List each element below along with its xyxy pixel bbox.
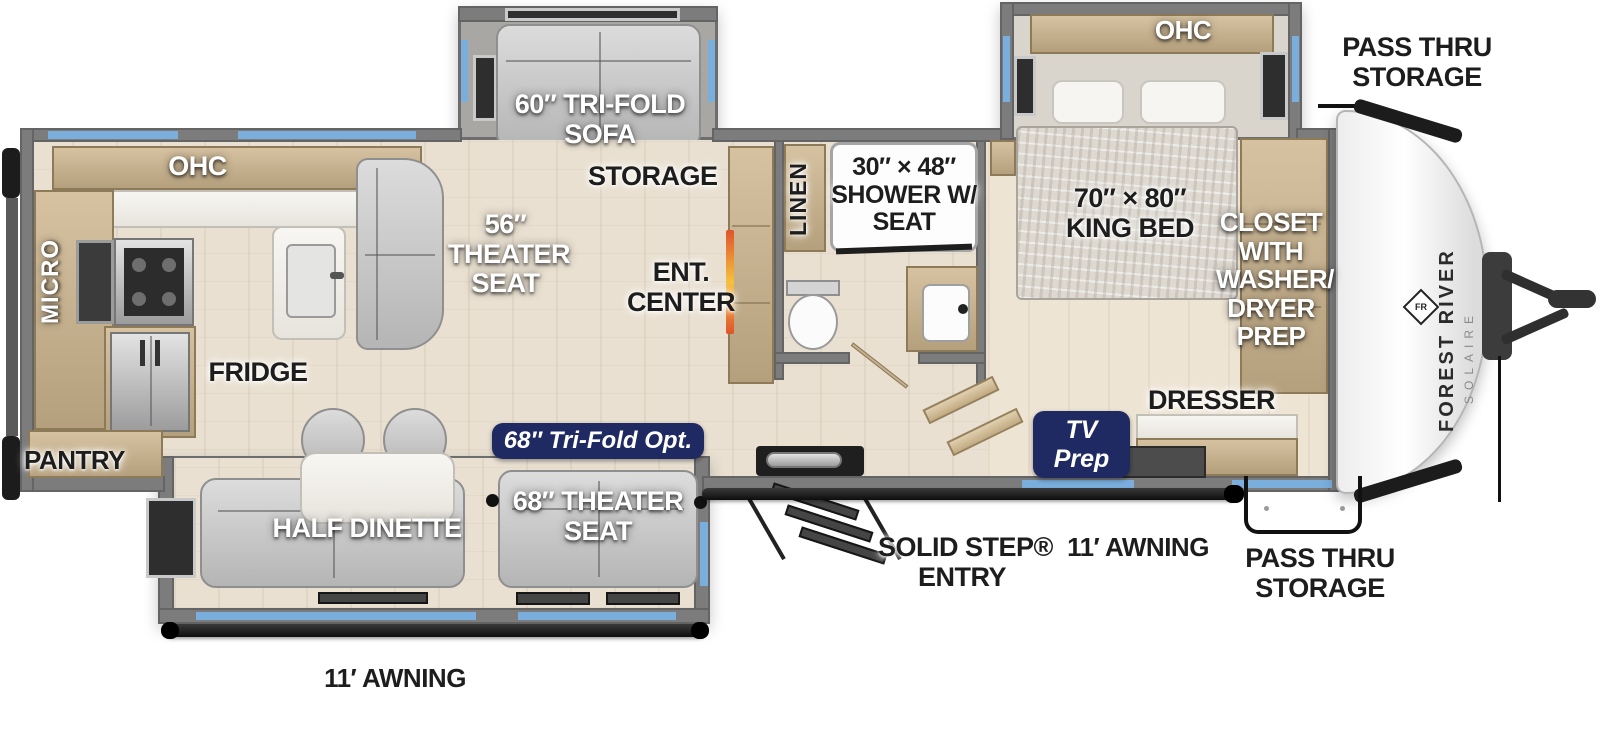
tongue-jack <box>1498 356 1501 502</box>
rear-bumper <box>2 148 20 198</box>
bathroom-vanity <box>906 266 978 352</box>
nightstand <box>990 140 1016 176</box>
window-accent <box>238 131 416 139</box>
tri-fold-opt-badge: 68″ Tri-Fold Opt. <box>492 423 704 459</box>
rear-bumper <box>2 436 20 500</box>
stove <box>114 238 194 326</box>
bathroom-bottom-wall <box>774 352 850 364</box>
window-accent <box>461 40 468 102</box>
entry-step-rail <box>746 496 785 560</box>
refrigerator <box>110 332 190 432</box>
fridge-label: FRIDGE <box>208 358 308 388</box>
sofa-slideout-side-window <box>473 55 497 121</box>
awning-rod-rear <box>165 624 705 637</box>
faucet-icon <box>330 272 344 279</box>
micro-label: MICRO <box>38 236 72 328</box>
bed-pillow <box>1052 80 1124 124</box>
tv-stand <box>1122 446 1206 478</box>
microwave <box>76 240 114 324</box>
window-accent <box>1292 36 1299 102</box>
window-accent <box>700 522 708 586</box>
bathroom-left-wall <box>774 140 784 380</box>
bed-pillow <box>1140 80 1226 124</box>
pass-thru-top-label: PASS THRU STORAGE <box>1342 33 1492 92</box>
toilet <box>788 294 838 350</box>
bedroom-window-left <box>1014 56 1036 116</box>
recliner-footrest <box>516 592 590 605</box>
theater-seat-56-label: 56″ THEATER SEAT <box>448 210 563 299</box>
window-accent <box>518 612 676 620</box>
window-accent <box>48 131 178 139</box>
top-wall <box>712 128 1002 142</box>
floorplan-diagram: FR FOREST RIVER SOLAIRE 68″ Tri-Fold Opt… <box>0 0 1600 735</box>
window-accent <box>708 40 715 102</box>
awning-entry-label: 11′ AWNING <box>1063 533 1213 562</box>
living-slideout-window <box>146 498 196 578</box>
window-accent <box>1003 36 1010 102</box>
dresser-label: DRESSER <box>1148 386 1273 416</box>
kitchen-ohc-label: OHC <box>150 152 245 182</box>
solid-step-entry-label: SOLID STEP® ENTRY <box>878 533 1046 592</box>
pantry-label: PANTRY <box>22 446 127 475</box>
theater-seat-68-label: 68″ THEATER SEAT <box>512 487 684 546</box>
brand-model: SOLAIRE <box>1462 244 1476 404</box>
cupholder <box>486 494 499 507</box>
brand-name: FOREST RIVER <box>1436 214 1459 432</box>
rear-wall-outer <box>6 198 18 436</box>
king-bed-label: 70″ × 80″ KING BED <box>1058 184 1202 243</box>
pass-thru-bottom-label: PASS THRU STORAGE <box>1245 544 1395 603</box>
sofa-slideout-window <box>505 8 680 21</box>
shower-label: 30″ × 48″ SHOWER W/ SEAT <box>830 154 978 237</box>
ent-center-label: ENT. CENTER <box>625 258 737 317</box>
window-accent <box>1022 480 1134 488</box>
pass-thru-bracket-bottom <box>1244 476 1362 534</box>
kitchen-island-counter <box>272 226 346 340</box>
bottom-wall <box>20 476 165 492</box>
hitch-coupler <box>1548 290 1596 308</box>
dresser-top <box>1136 414 1298 440</box>
awning-rear-label: 11′ AWNING <box>320 664 470 693</box>
recliner-footrest <box>606 592 680 605</box>
bathroom-bottom-wall <box>918 352 986 364</box>
faucet-icon <box>958 304 968 314</box>
kitchen-sink <box>286 244 336 318</box>
tri-fold-sofa-label: 60″ TRI-FOLD SOFA <box>505 90 695 149</box>
bedroom-window-right <box>1260 52 1288 120</box>
tv-prep-badge: TV Prep <box>1033 411 1130 478</box>
recliner-footrest <box>318 592 428 604</box>
closet-label: CLOSET WITH WASHER/ DRYER PREP <box>1216 208 1326 351</box>
storage-label: STORAGE <box>588 162 713 192</box>
bedroom-ohc-label: OHC <box>1138 16 1228 45</box>
awning-rod-entry <box>702 488 1238 500</box>
linen-label: LINEN <box>786 152 820 246</box>
theater-seat-56 <box>356 158 444 350</box>
half-dinette-label: HALF DINETTE <box>272 514 462 544</box>
entry-step-roller <box>766 452 842 468</box>
window-accent <box>196 612 476 620</box>
